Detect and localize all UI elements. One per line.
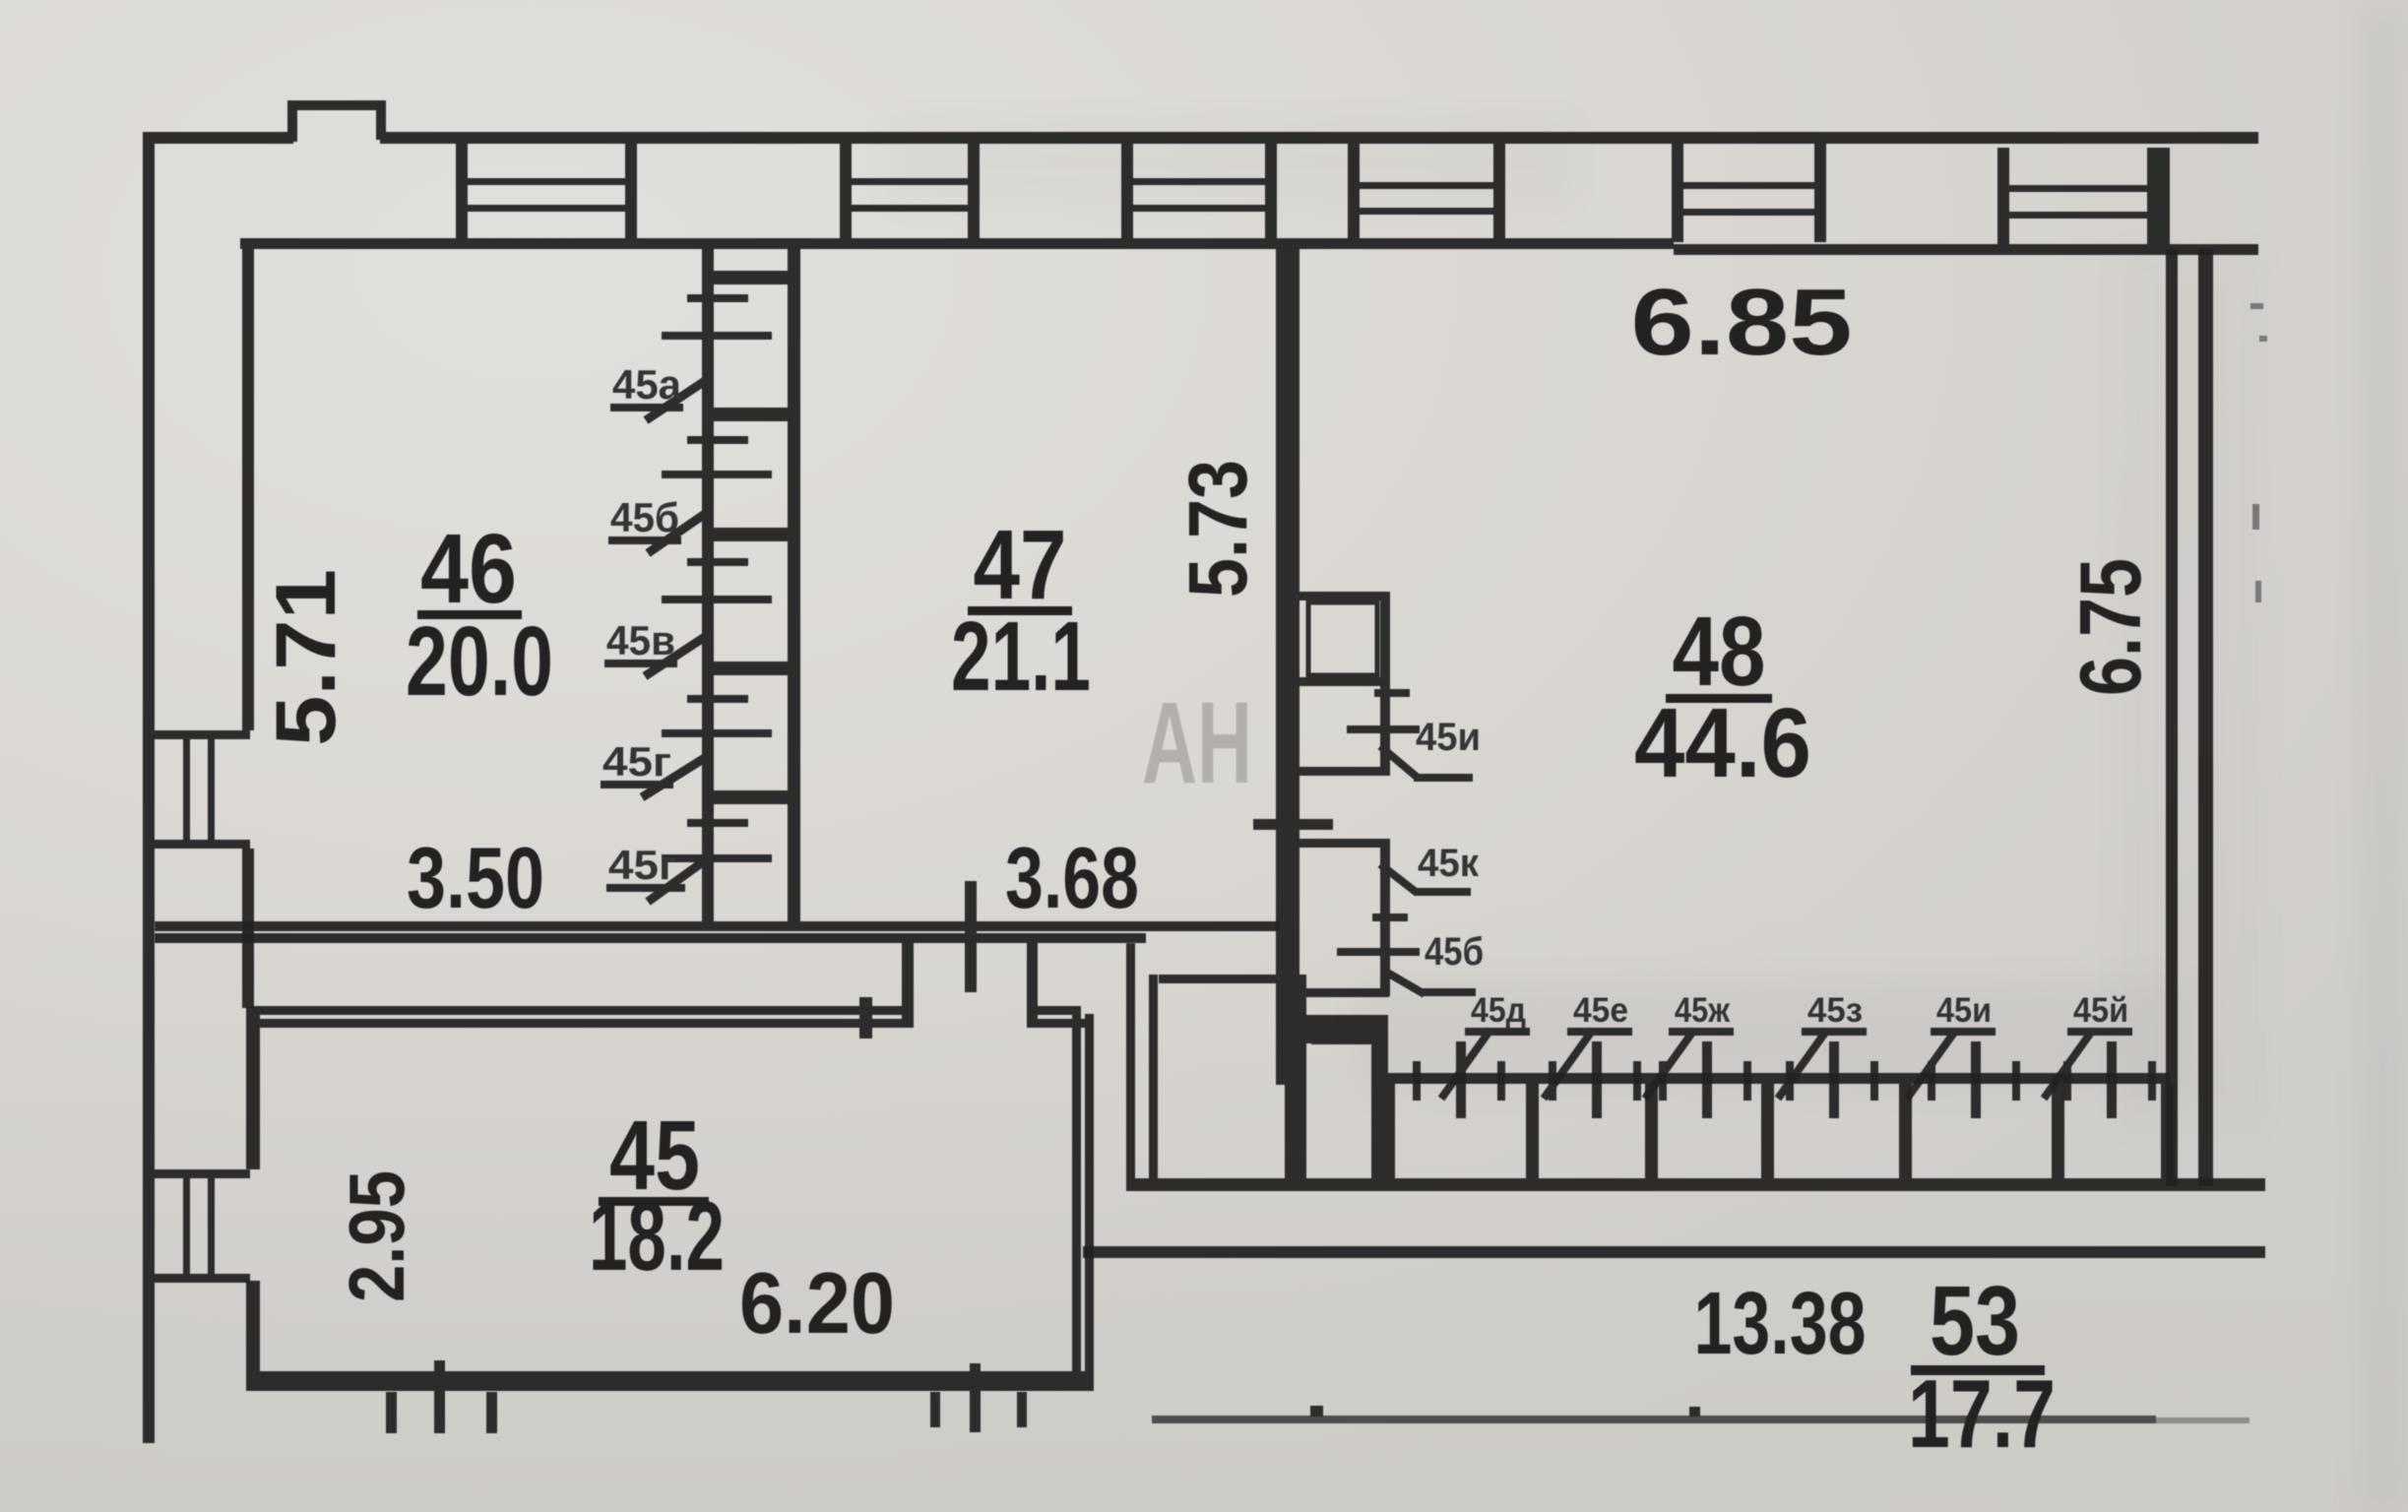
svg-text:45г: 45г xyxy=(602,738,671,785)
svg-text:44.6: 44.6 xyxy=(1634,688,1811,798)
svg-text:45б: 45б xyxy=(1425,930,1484,974)
svg-text:45д: 45д xyxy=(1471,991,1526,1030)
svg-text:45в: 45в xyxy=(606,617,675,663)
svg-text:45й: 45й xyxy=(2073,991,2128,1030)
svg-text:5.71: 5.71 xyxy=(259,569,353,746)
svg-text:45и: 45и xyxy=(1936,991,1992,1030)
svg-text:3.50: 3.50 xyxy=(407,829,544,926)
svg-text:3.68: 3.68 xyxy=(1005,829,1139,926)
svg-text:2.95: 2.95 xyxy=(333,1170,420,1302)
svg-text:6.85: 6.85 xyxy=(1631,270,1853,375)
svg-text:5.73: 5.73 xyxy=(1172,460,1264,598)
svg-text:20.0: 20.0 xyxy=(406,606,553,717)
svg-text:45б: 45б xyxy=(610,494,679,540)
svg-text:45к: 45к xyxy=(1418,842,1480,885)
svg-text:17.7: 17.7 xyxy=(1908,1359,2056,1468)
svg-text:45з: 45з xyxy=(1807,991,1863,1030)
svg-text:45и: 45и xyxy=(1416,716,1481,759)
svg-text:6.20: 6.20 xyxy=(739,1254,895,1352)
svg-text:6.75: 6.75 xyxy=(2061,558,2159,696)
svg-text:45е: 45е xyxy=(1573,991,1628,1030)
svg-text:АН: АН xyxy=(1142,678,1252,808)
svg-text:18.2: 18.2 xyxy=(589,1181,725,1291)
svg-text:45г: 45г xyxy=(608,842,677,888)
svg-text:45а: 45а xyxy=(612,361,682,408)
svg-text:45ж: 45ж xyxy=(1675,991,1731,1030)
svg-text:21.1: 21.1 xyxy=(951,601,1091,712)
svg-text:13.38: 13.38 xyxy=(1694,1275,1867,1373)
